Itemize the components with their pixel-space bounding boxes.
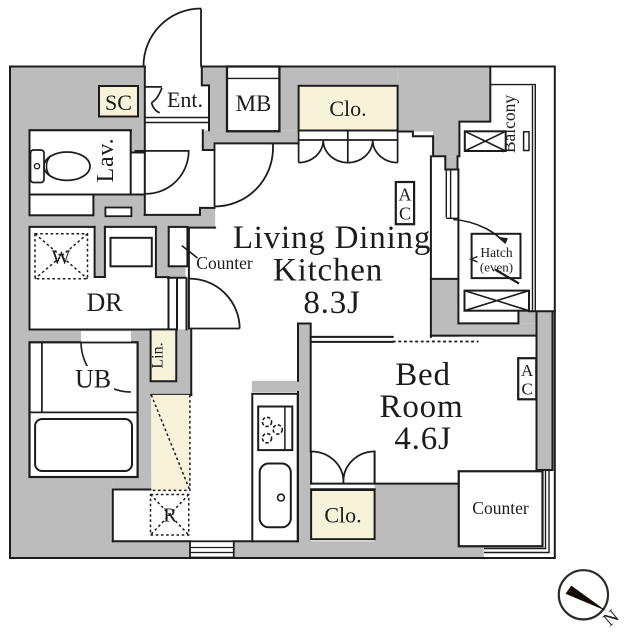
svg-text:R: R: [163, 505, 177, 527]
svg-text:Counter: Counter: [196, 253, 253, 273]
svg-text:Living Dining: Living Dining: [233, 220, 431, 256]
svg-text:Lin.: Lin.: [150, 342, 167, 368]
svg-text:Bed: Bed: [395, 357, 451, 393]
svg-text:C: C: [399, 204, 411, 224]
svg-text:UB: UB: [75, 365, 111, 394]
svg-text:Kitchen: Kitchen: [273, 253, 383, 289]
svg-text:W: W: [52, 247, 71, 269]
svg-text:A: A: [521, 361, 534, 380]
svg-text:Lav.: Lav.: [93, 138, 119, 183]
svg-text:DR: DR: [86, 288, 123, 317]
svg-text:4.6J: 4.6J: [394, 421, 451, 457]
svg-text:A: A: [399, 185, 412, 205]
svg-text:(even): (even): [480, 260, 513, 275]
svg-text:Ent.: Ent.: [167, 87, 203, 112]
svg-text:C: C: [522, 380, 533, 399]
svg-text:Clo.: Clo.: [324, 503, 361, 528]
svg-text:SC: SC: [105, 90, 132, 115]
svg-text:8.3J: 8.3J: [303, 285, 360, 321]
svg-text:MB: MB: [236, 91, 272, 116]
svg-text:Hatch: Hatch: [480, 245, 512, 260]
svg-text:Room: Room: [380, 389, 464, 425]
svg-text:Counter: Counter: [472, 498, 529, 518]
svg-text:Clo.: Clo.: [329, 96, 366, 121]
